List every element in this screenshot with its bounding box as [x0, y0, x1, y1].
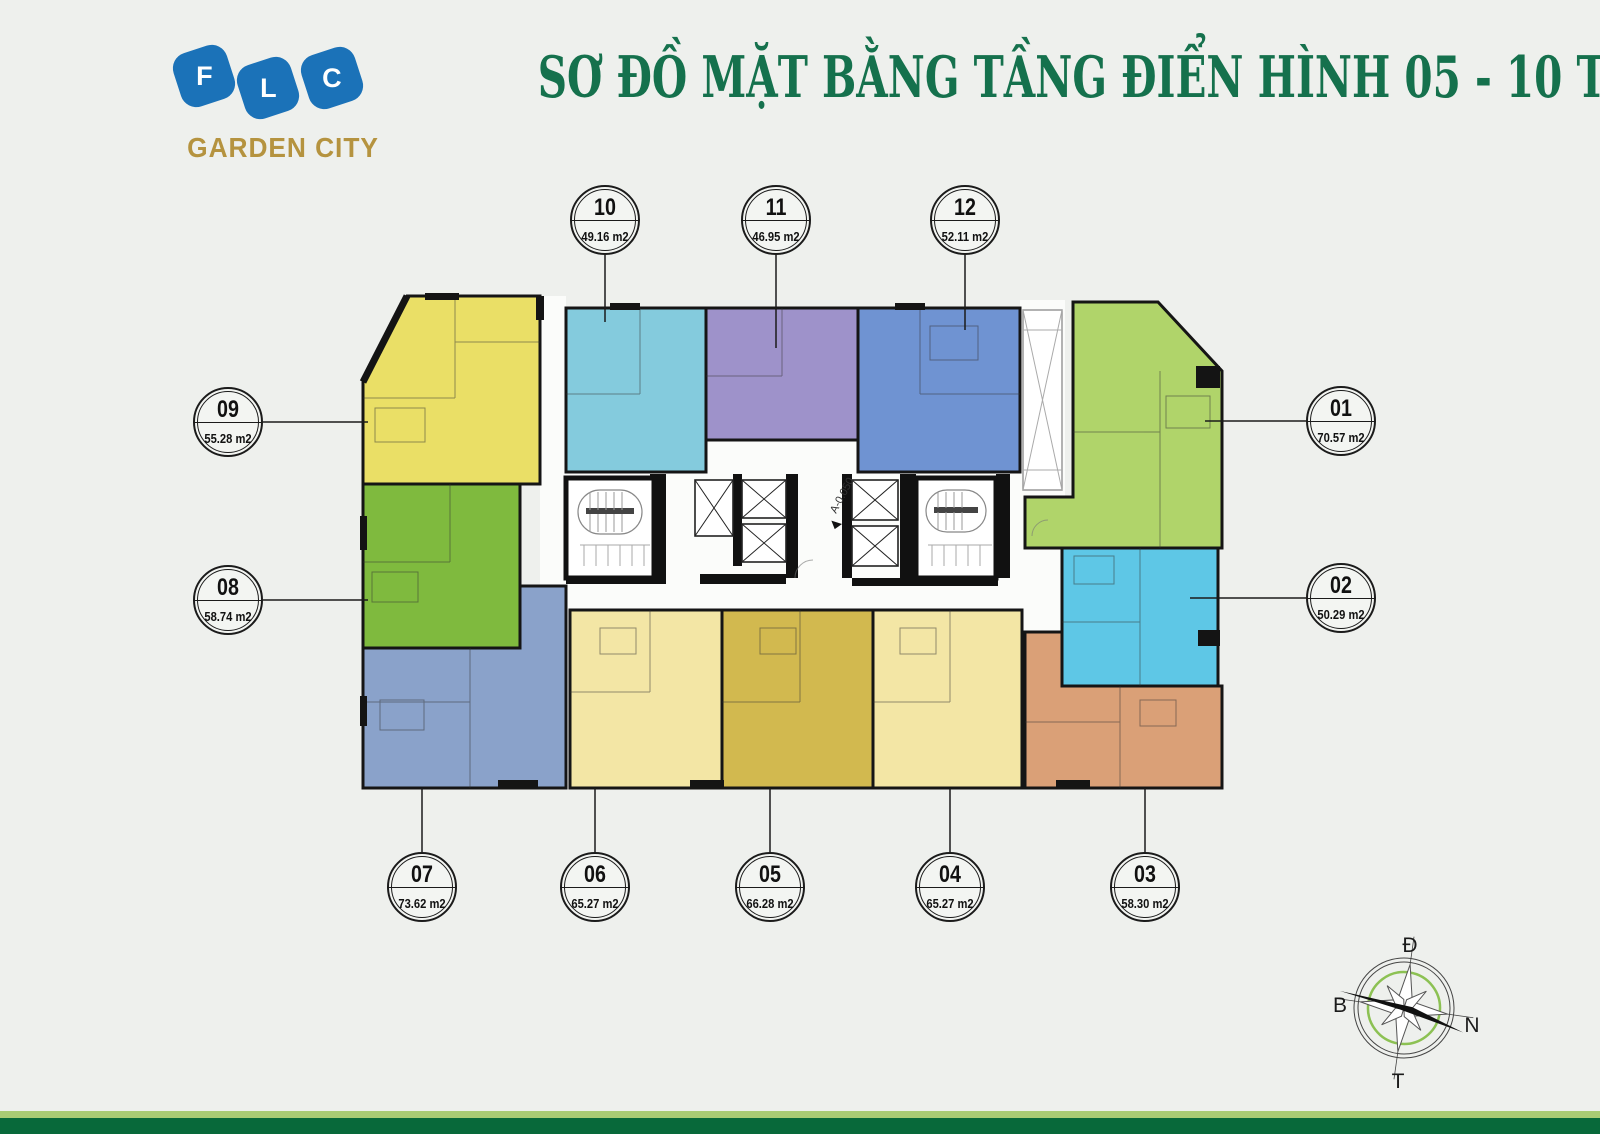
- unit-area: 70.57 m2: [1313, 430, 1370, 445]
- unit-area: 58.74 m2: [200, 609, 257, 624]
- callout-unit-03: 03 58.30 m2: [1110, 852, 1180, 922]
- unit-area: 49.16 m2: [577, 229, 634, 244]
- staircase-left-icon: [566, 478, 654, 578]
- unit-05-region: [722, 610, 873, 788]
- unit-number: 07: [395, 861, 449, 889]
- unit-number: 01: [1314, 395, 1368, 423]
- callout-unit-01: 01 70.57 m2: [1306, 386, 1376, 456]
- callout-unit-08: 08 58.74 m2: [193, 565, 263, 635]
- footer-stripe-light: [0, 1111, 1600, 1118]
- callout-unit-07: 07 73.62 m2: [387, 852, 457, 922]
- unit-number: 02: [1314, 572, 1368, 600]
- unit-10-region: [566, 308, 706, 472]
- callout-unit-10: 10 49.16 m2: [570, 185, 640, 255]
- unit-12-region: [858, 308, 1020, 472]
- unit-number: 05: [743, 861, 797, 889]
- unit-area: 52.11 m2: [937, 229, 994, 244]
- unit-number: 03: [1118, 861, 1172, 889]
- unit-number: 04: [923, 861, 977, 889]
- callout-unit-12: 12 52.11 m2: [930, 185, 1000, 255]
- callout-unit-04: 04 65.27 m2: [915, 852, 985, 922]
- unit-08-region: [363, 484, 520, 648]
- unit-06-region: [570, 610, 722, 788]
- unit-area: 73.62 m2: [394, 896, 451, 911]
- poster-page: F L C GARDEN CITY SƠ ĐỒ MẶT BẰNG TẦNG ĐI…: [0, 0, 1600, 1134]
- shaft-icon: [1023, 310, 1062, 490]
- unit-area: 65.27 m2: [922, 896, 979, 911]
- unit-number: 10: [578, 194, 632, 222]
- staircase-right-icon: [916, 478, 996, 578]
- compass-label-left: B: [1333, 994, 1347, 1017]
- unit-04-region: [873, 610, 1022, 788]
- unit-area: 58.30 m2: [1117, 896, 1174, 911]
- footer-stripe-dark: [0, 1118, 1600, 1134]
- unit-number: 06: [568, 861, 622, 889]
- unit-area: 50.29 m2: [1313, 607, 1370, 622]
- compass-label-top: Đ: [1402, 934, 1417, 957]
- compass-label-bottom: T: [1392, 1070, 1405, 1093]
- unit-number: 08: [201, 574, 255, 602]
- callout-unit-06: 06 65.27 m2: [560, 852, 630, 922]
- unit-area: 65.27 m2: [567, 896, 624, 911]
- unit-area: 46.95 m2: [748, 229, 805, 244]
- unit-number: 12: [938, 194, 992, 222]
- compass-label-right: N: [1464, 1014, 1479, 1037]
- unit-number: 09: [201, 396, 255, 424]
- unit-number: 11: [749, 194, 803, 222]
- callout-unit-05: 05 66.28 m2: [735, 852, 805, 922]
- callout-unit-02: 02 50.29 m2: [1306, 563, 1376, 633]
- unit-area: 55.28 m2: [200, 431, 257, 446]
- callout-unit-09: 09 55.28 m2: [193, 387, 263, 457]
- compass-rose: Đ B N T: [1325, 927, 1484, 1093]
- callout-unit-11: 11 46.95 m2: [741, 185, 811, 255]
- unit-area: 66.28 m2: [742, 896, 799, 911]
